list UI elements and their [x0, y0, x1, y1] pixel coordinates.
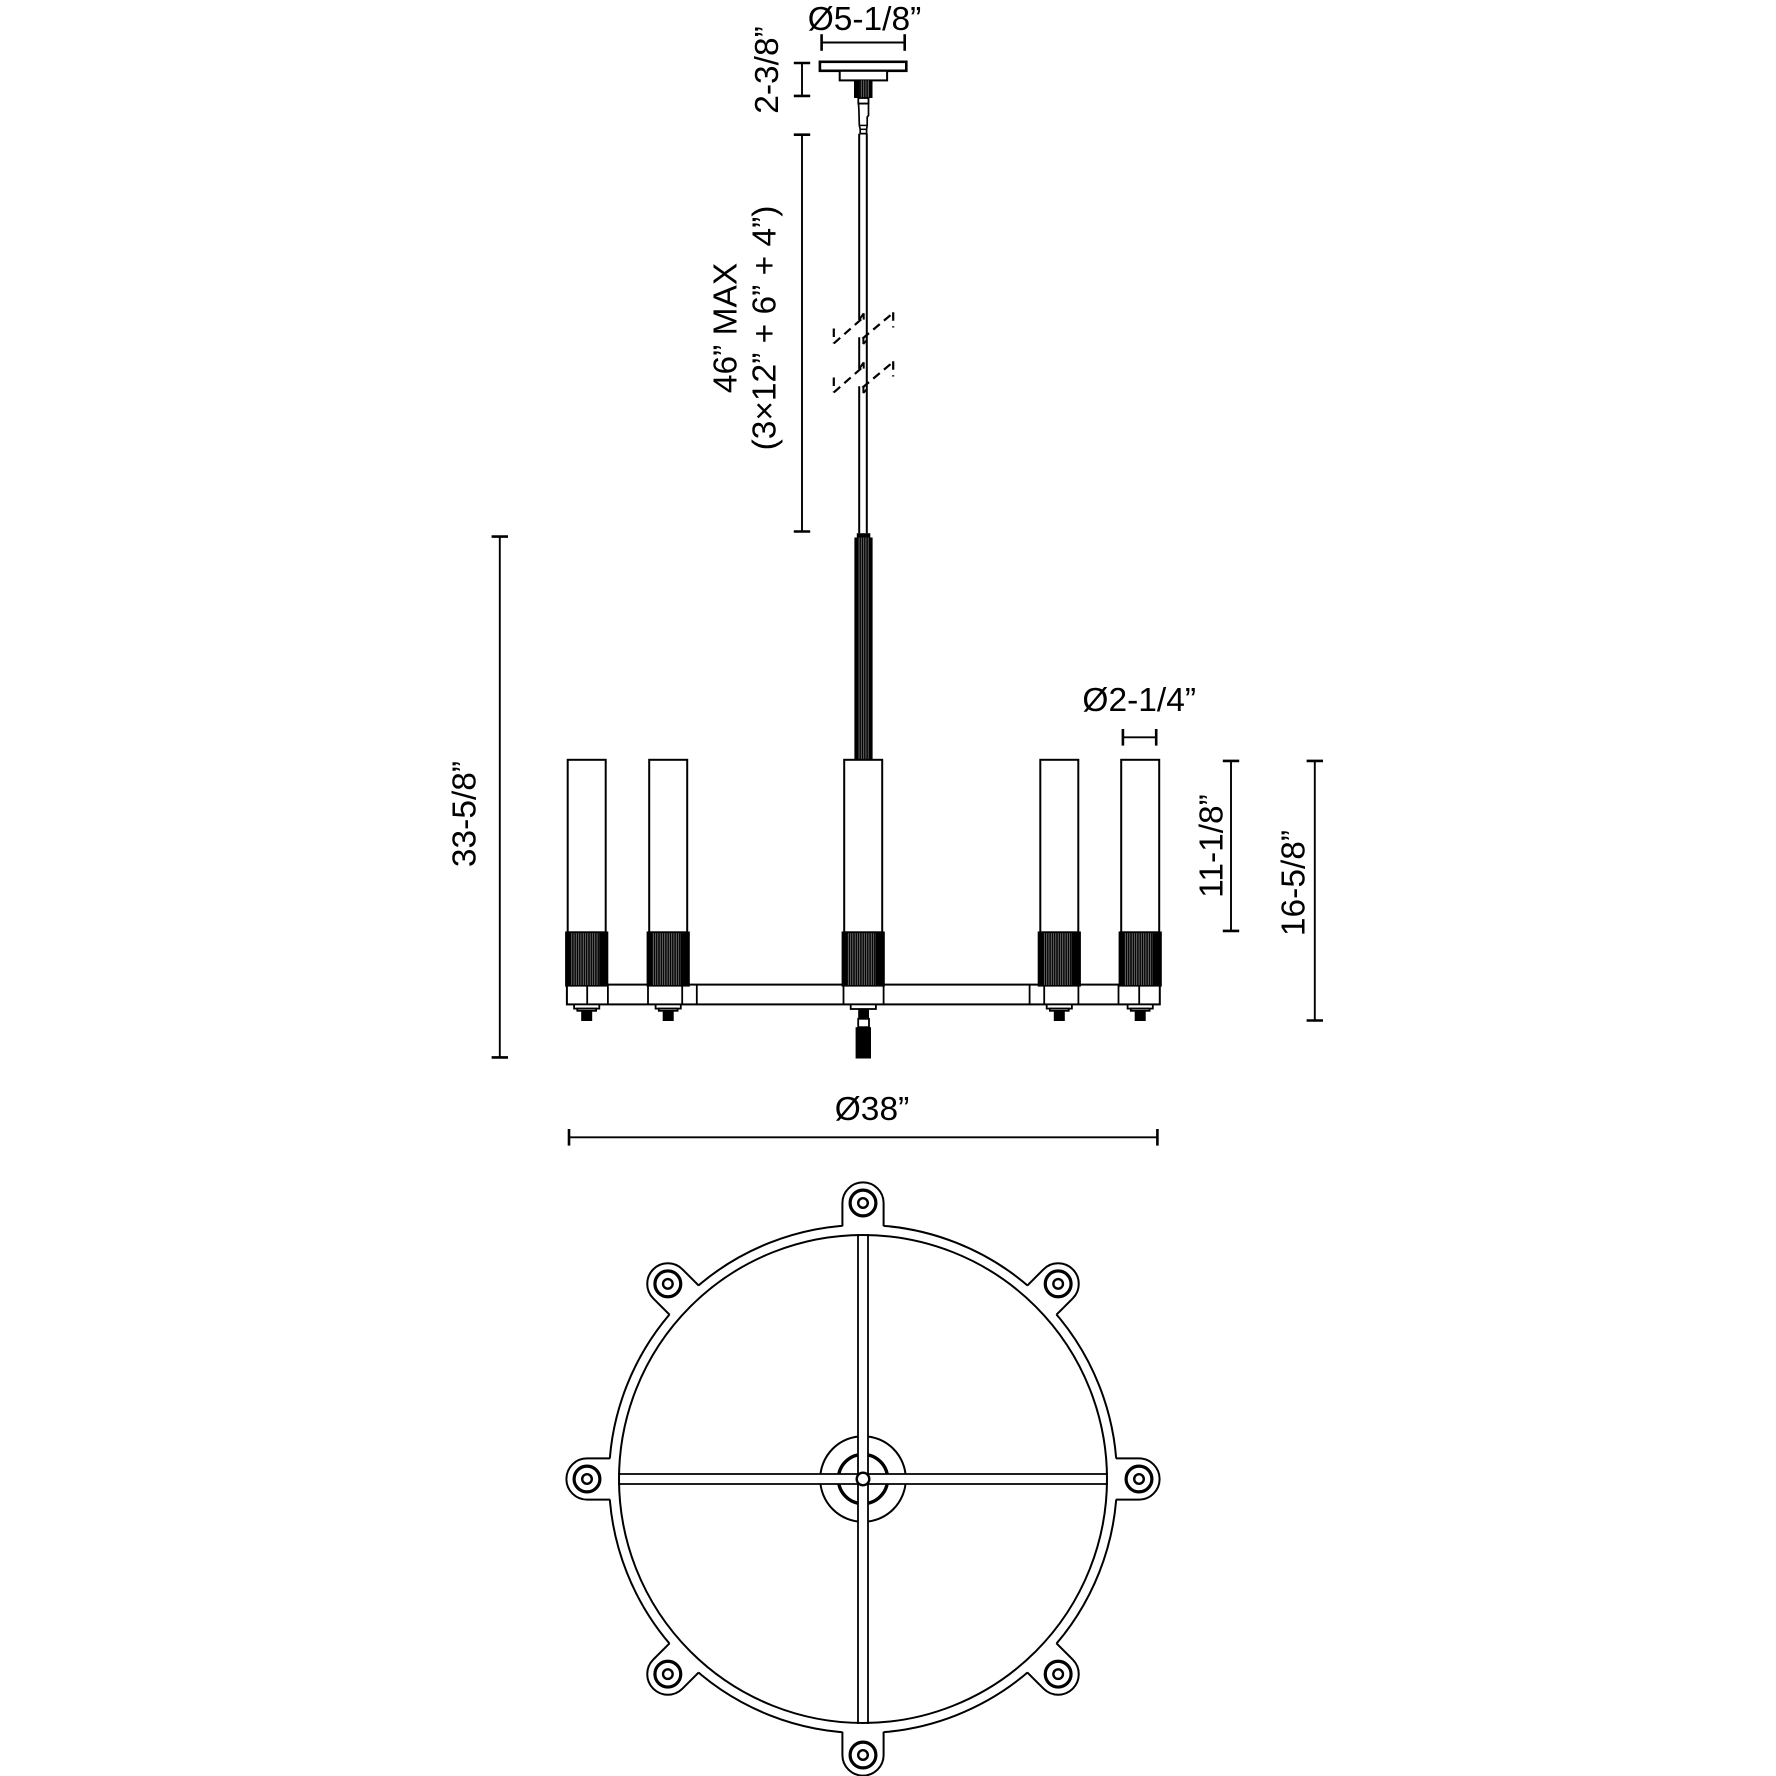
svg-text:2-3/8”: 2-3/8” [749, 26, 786, 114]
svg-text:Ø2-1/4”: Ø2-1/4” [1082, 682, 1196, 719]
svg-text:33-5/8”: 33-5/8” [446, 761, 483, 867]
svg-text:(3×12” + 6” + 4”): (3×12” + 6” + 4”) [747, 206, 784, 451]
svg-text:11-1/8”: 11-1/8” [1194, 794, 1231, 898]
svg-text:16-5/8”: 16-5/8” [1275, 830, 1312, 936]
svg-text:Ø5-1/8”: Ø5-1/8” [808, 1, 922, 38]
svg-text:Ø38”: Ø38” [835, 1091, 909, 1128]
svg-text:46” MAX: 46” MAX [708, 263, 745, 393]
